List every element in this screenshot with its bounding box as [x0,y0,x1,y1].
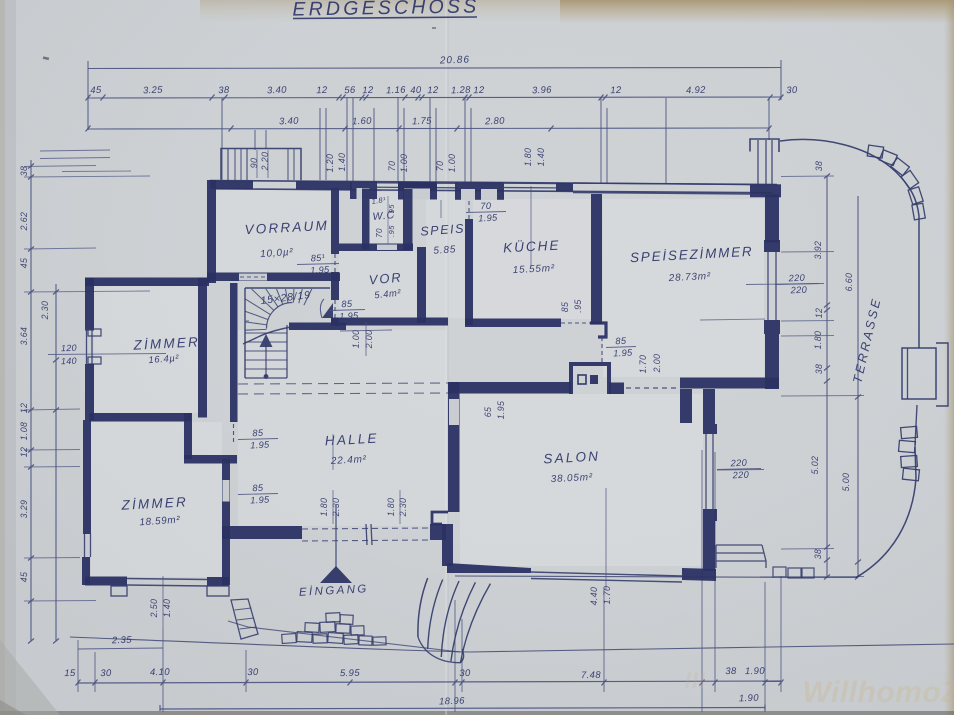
svg-text:45: 45 [19,258,29,269]
svg-text:18.96: 18.96 [439,696,465,708]
svg-text:.95: .95 [573,299,583,312]
svg-text:1.90: 1.90 [745,666,766,677]
svg-text:220: 220 [729,458,747,469]
svg-text:12: 12 [427,85,439,96]
svg-text:2.30: 2.30 [398,498,408,518]
svg-text:1.16: 1.16 [386,85,406,97]
svg-text:1.95: 1.95 [250,439,270,450]
svg-text:12: 12 [610,85,622,96]
svg-text:4.40: 4.40 [589,587,599,606]
svg-text:45: 45 [19,572,29,583]
svg-text:38: 38 [813,549,823,560]
svg-text:2.00: 2.00 [364,330,374,350]
svg-text:12: 12 [316,85,328,96]
svg-text:SALON: SALON [543,449,600,467]
svg-text:12: 12 [19,403,29,414]
svg-text:15: 15 [64,668,76,679]
svg-text:3.29: 3.29 [19,500,29,519]
svg-text:70: 70 [435,161,445,172]
svg-text:1.40: 1.40 [162,599,172,618]
svg-text:1.60: 1.60 [352,116,372,128]
svg-text:1.00: 1.00 [351,330,361,349]
svg-text:1.95: 1.95 [496,401,506,420]
svg-text:38: 38 [725,666,737,677]
svg-text:38.05m²: 38.05m² [550,472,593,485]
svg-text:85: 85 [252,483,264,494]
svg-text:28.73m²: 28.73m² [667,271,711,284]
svg-text:1.80: 1.80 [386,498,396,517]
svg-text:1.20: 1.20 [325,154,335,173]
svg-text:38: 38 [218,85,230,96]
svg-text:12: 12 [473,85,485,96]
svg-text:220: 220 [789,285,807,296]
svg-text:5.85: 5.85 [433,244,456,257]
svg-text:1.28: 1.28 [451,85,471,97]
svg-text:1.95: 1.95 [613,347,633,358]
svg-text:38: 38 [19,166,29,177]
svg-text:56: 56 [344,85,356,96]
svg-text:3.25: 3.25 [143,85,163,97]
svg-text:65: 65 [483,407,493,418]
svg-text:1.40: 1.40 [536,148,546,167]
svg-text:30: 30 [247,667,259,678]
svg-text:1.95: 1.95 [339,310,359,321]
svg-text:15.55m²: 15.55m² [512,263,555,276]
svg-text:22.4m²: 22.4m² [330,454,367,467]
svg-text:2.35: 2.35 [111,635,133,647]
svg-text:1.95: 1.95 [310,264,330,275]
svg-text:4.10: 4.10 [150,667,171,678]
svg-text:1.70: 1.70 [638,355,648,374]
svg-text:3.92: 3.92 [813,241,823,260]
svg-text:3.40: 3.40 [279,116,299,128]
svg-text:KÜCHE: KÜCHE [503,238,561,256]
svg-text:38: 38 [814,161,824,172]
svg-text:1.00: 1.00 [399,154,409,173]
svg-text:1.70: 1.70 [602,586,612,605]
svg-text:120: 120 [61,343,77,354]
svg-text:2.30: 2.30 [40,301,50,321]
svg-text:WillhomoZ: WillhomoZ [802,676,954,709]
svg-text:85¹: 85¹ [310,253,325,264]
svg-text:20.86: 20.86 [439,54,470,66]
svg-text:85: 85 [252,428,264,439]
svg-text:3.64: 3.64 [19,327,29,346]
svg-text:70: 70 [387,161,397,172]
svg-text:85: 85 [615,336,627,347]
svg-text:VOR: VOR [368,270,403,288]
svg-text:7.48: 7.48 [581,670,602,681]
svg-text:220: 220 [787,273,805,284]
svg-text:1.08: 1.08 [19,422,29,441]
svg-text:45: 45 [90,85,102,96]
svg-text:III: III [685,668,706,693]
svg-text:30: 30 [459,668,471,679]
svg-text:5.02: 5.02 [810,456,820,475]
svg-text:85: 85 [560,302,570,313]
svg-text:1.80: 1.80 [813,331,823,350]
svg-text:1.80: 1.80 [319,498,329,517]
svg-text:3.96: 3.96 [532,85,552,97]
svg-text:2.20: 2.20 [260,152,270,172]
svg-text:140: 140 [61,356,77,367]
svg-text:3.40: 3.40 [267,85,287,97]
svg-text:2.00: 2.00 [652,354,662,374]
svg-text:1.90: 1.90 [739,693,760,705]
svg-text:70: 70 [375,228,384,238]
svg-text:2.50: 2.50 [149,599,159,619]
svg-text:16.4µ²: 16.4µ² [148,353,180,366]
svg-text:70: 70 [480,201,492,212]
svg-text:1.00: 1.00 [447,154,457,173]
svg-text:85: 85 [341,299,353,310]
svg-text:30: 30 [786,85,798,96]
svg-text:30: 30 [100,668,112,679]
svg-text:38: 38 [814,364,824,375]
svg-text:1.40: 1.40 [337,153,347,172]
svg-text:10,0µ²: 10,0µ² [260,247,294,260]
svg-text:90: 90 [249,158,259,169]
svg-text:1.75: 1.75 [412,116,432,128]
svg-text:2.80: 2.80 [484,116,505,128]
svg-text:1.95: 1.95 [478,212,498,223]
svg-text:4.92: 4.92 [686,85,706,97]
svg-text:12: 12 [814,308,824,319]
svg-text:5.95: 5.95 [340,668,361,679]
svg-text:5.00: 5.00 [841,473,851,492]
svg-text:1.95: 1.95 [250,494,270,505]
svg-text:220: 220 [731,470,749,481]
svg-text:1.80: 1.80 [523,148,533,167]
svg-text:2.62: 2.62 [19,212,29,232]
svg-text:6.60: 6.60 [844,273,854,292]
svg-text:12: 12 [19,447,29,458]
